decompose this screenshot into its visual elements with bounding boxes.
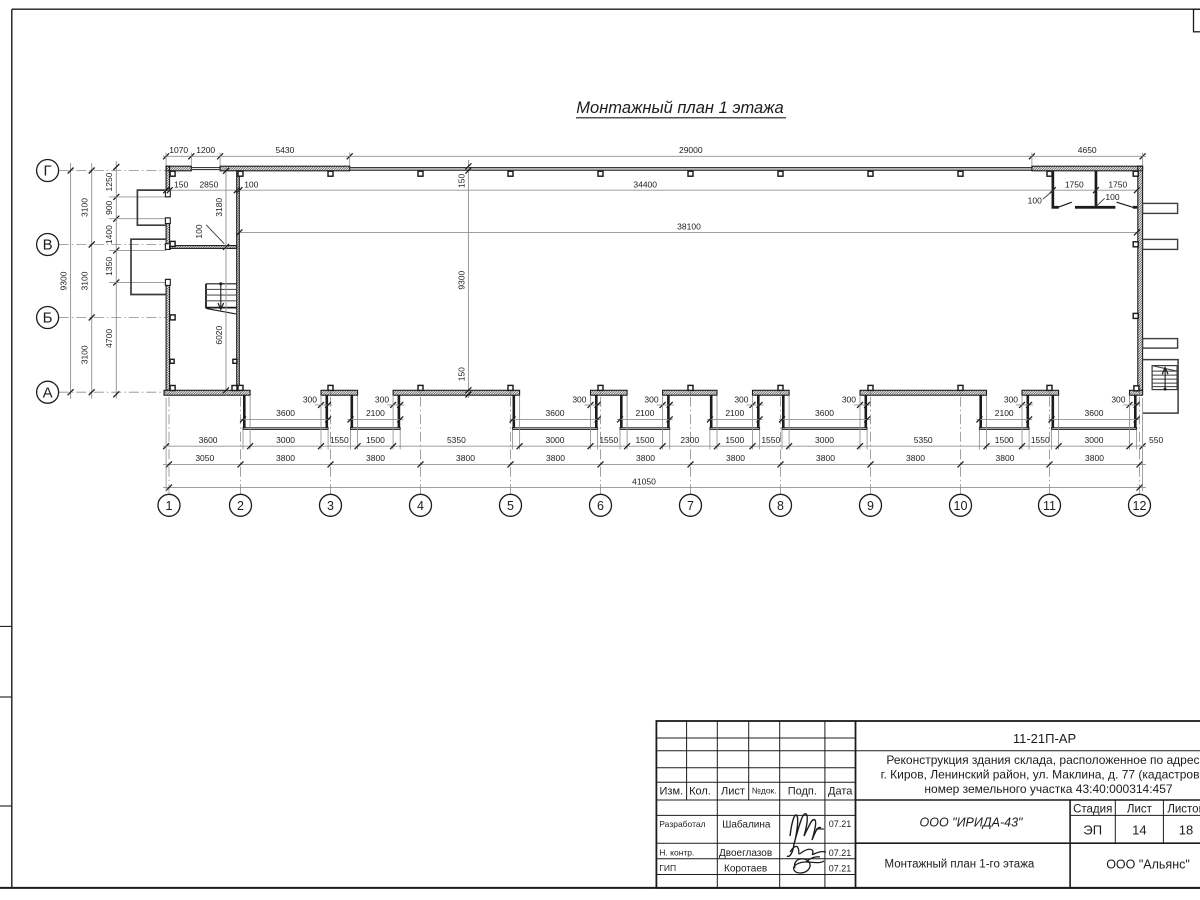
svg-text:5350: 5350: [447, 435, 466, 445]
svg-text:100: 100: [1105, 192, 1119, 202]
svg-text:1750: 1750: [1108, 179, 1127, 189]
svg-text:900: 900: [104, 200, 114, 214]
svg-text:Подп.: Подп.: [788, 786, 817, 798]
svg-text:Лист: Лист: [721, 786, 745, 798]
svg-text:3800: 3800: [366, 453, 385, 463]
svg-text:3000: 3000: [546, 435, 565, 445]
svg-text:1200: 1200: [196, 145, 215, 155]
svg-text:300: 300: [644, 395, 658, 405]
svg-text:550: 550: [1149, 435, 1163, 445]
svg-text:1070: 1070: [169, 145, 188, 155]
svg-text:3800: 3800: [906, 453, 925, 463]
svg-text:3180: 3180: [214, 198, 224, 217]
svg-text:4: 4: [417, 499, 424, 513]
svg-text:3600: 3600: [546, 408, 565, 418]
svg-text:150: 150: [174, 179, 188, 189]
svg-text:12: 12: [1133, 499, 1147, 513]
svg-text:6020: 6020: [214, 325, 224, 344]
svg-text:9300: 9300: [456, 270, 466, 289]
svg-text:6: 6: [597, 499, 604, 513]
svg-text:3100: 3100: [80, 198, 90, 217]
svg-text:2100: 2100: [995, 408, 1014, 418]
svg-text:3100: 3100: [80, 271, 90, 290]
svg-text:1350: 1350: [104, 257, 114, 276]
svg-text:г. Киров, Ленинский район, ул.: г. Киров, Ленинский район, ул. Маклина, …: [881, 768, 1200, 782]
svg-text:34400: 34400: [633, 179, 657, 189]
svg-text:100: 100: [1028, 195, 1042, 205]
svg-text:Монтажный план 1-го этажа: Монтажный план 1-го этажа: [885, 859, 1035, 871]
svg-text:4650: 4650: [1078, 145, 1097, 155]
svg-text:Двоеглазов: Двоеглазов: [719, 848, 772, 859]
svg-text:номер земельного участка 43:40: номер земельного участка 43:40:000314:45…: [924, 782, 1173, 796]
svg-text:7: 7: [687, 499, 694, 513]
svg-text:Разработал: Разработал: [659, 819, 705, 829]
svg-text:41050: 41050: [632, 476, 656, 486]
svg-text:Дата: Дата: [828, 786, 853, 798]
svg-text:3: 3: [327, 499, 334, 513]
svg-text:1400: 1400: [104, 225, 114, 244]
svg-text:3600: 3600: [1085, 408, 1104, 418]
svg-text:Изм.: Изм.: [660, 786, 684, 798]
svg-text:1550: 1550: [761, 435, 780, 445]
svg-text:3600: 3600: [199, 435, 218, 445]
svg-text:4700: 4700: [104, 329, 114, 348]
svg-text:300: 300: [1111, 395, 1125, 405]
svg-text:Б: Б: [43, 310, 53, 327]
svg-text:3800: 3800: [726, 453, 745, 463]
svg-text:1750: 1750: [1065, 179, 1084, 189]
svg-text:11-21П-АР: 11-21П-АР: [1013, 731, 1076, 746]
svg-text:150: 150: [456, 174, 466, 188]
svg-text:3800: 3800: [636, 453, 655, 463]
svg-text:2100: 2100: [725, 408, 744, 418]
svg-text:3800: 3800: [1085, 453, 1104, 463]
svg-text:2300: 2300: [680, 435, 699, 445]
svg-text:11: 11: [1043, 499, 1056, 513]
svg-text:300: 300: [842, 395, 856, 405]
svg-text:ГИП: ГИП: [659, 863, 676, 873]
svg-text:Шабалина: Шабалина: [722, 818, 771, 830]
svg-text:3100: 3100: [80, 345, 90, 364]
svg-text:1500: 1500: [725, 435, 744, 445]
svg-text:Монтажный план 1 этажа: Монтажный план 1 этажа: [576, 99, 783, 117]
svg-text:5: 5: [507, 499, 514, 513]
svg-text:300: 300: [734, 395, 748, 405]
svg-text:07.21: 07.21: [829, 819, 852, 829]
svg-text:В: В: [43, 237, 53, 254]
svg-text:9300: 9300: [59, 271, 69, 290]
svg-text:Листов: Листов: [1167, 803, 1200, 815]
svg-text:1550: 1550: [330, 435, 349, 445]
svg-text:300: 300: [303, 395, 317, 405]
svg-text:9: 9: [867, 499, 874, 513]
svg-text:Реконструкция здания склада, р: Реконструкция здания склада, расположенн…: [886, 753, 1199, 767]
svg-text:07.21: 07.21: [829, 863, 852, 873]
svg-text:8: 8: [777, 499, 784, 513]
svg-text:1550: 1550: [1031, 435, 1050, 445]
svg-text:3800: 3800: [546, 453, 565, 463]
svg-text:Коротаев: Коротаев: [724, 863, 767, 874]
svg-text:300: 300: [375, 395, 389, 405]
svg-text:ООО "Альянс": ООО "Альянс": [1106, 858, 1190, 872]
svg-text:3800: 3800: [276, 453, 295, 463]
svg-text:3800: 3800: [996, 453, 1015, 463]
svg-text:150: 150: [456, 367, 466, 381]
svg-text:1: 1: [166, 499, 173, 513]
svg-text:Кол.: Кол.: [689, 786, 711, 798]
svg-text:100: 100: [244, 179, 258, 189]
svg-text:Стадия: Стадия: [1073, 803, 1112, 815]
svg-text:29000: 29000: [679, 145, 703, 155]
svg-text:ООО "ИРИДА-43": ООО "ИРИДА-43": [920, 816, 1024, 830]
svg-text:Н. контр.: Н. контр.: [659, 847, 694, 857]
svg-text:2850: 2850: [199, 179, 218, 189]
svg-text:3600: 3600: [815, 408, 834, 418]
svg-text:1250: 1250: [104, 172, 114, 191]
svg-text:1500: 1500: [635, 435, 654, 445]
svg-text:1500: 1500: [995, 435, 1014, 445]
svg-text:10: 10: [954, 499, 968, 513]
svg-text:18: 18: [1179, 823, 1193, 838]
svg-text:Лист: Лист: [1127, 803, 1153, 815]
svg-text:3800: 3800: [456, 453, 475, 463]
svg-text:2100: 2100: [366, 408, 385, 418]
svg-text:300: 300: [1004, 395, 1018, 405]
svg-text:Г: Г: [44, 163, 52, 180]
svg-text:5350: 5350: [914, 435, 933, 445]
svg-text:2: 2: [237, 499, 244, 513]
svg-text:А: А: [43, 384, 53, 401]
svg-text:3000: 3000: [815, 435, 834, 445]
svg-text:ЭП: ЭП: [1083, 823, 1102, 838]
svg-text:3600: 3600: [276, 408, 295, 418]
svg-text:14: 14: [1132, 823, 1146, 838]
svg-text:1550: 1550: [599, 435, 618, 445]
svg-text:5430: 5430: [275, 145, 294, 155]
svg-text:№док.: №док.: [752, 786, 777, 796]
svg-text:300: 300: [572, 395, 586, 405]
svg-text:1500: 1500: [366, 435, 385, 445]
svg-text:07.21: 07.21: [829, 848, 852, 858]
svg-text:3000: 3000: [1085, 435, 1104, 445]
svg-text:100: 100: [194, 224, 204, 238]
svg-text:3800: 3800: [816, 453, 835, 463]
svg-text:38100: 38100: [677, 222, 701, 232]
svg-text:3000: 3000: [276, 435, 295, 445]
svg-text:2100: 2100: [635, 408, 654, 418]
svg-text:3050: 3050: [195, 453, 214, 463]
